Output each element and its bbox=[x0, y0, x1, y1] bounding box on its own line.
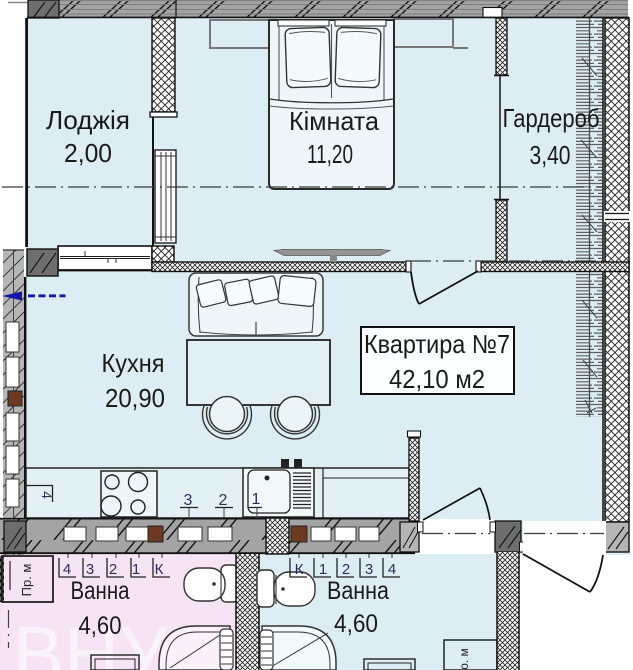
svg-text:3,40: 3,40 bbox=[530, 140, 571, 170]
svg-text:4,60: 4,60 bbox=[334, 610, 378, 638]
svg-text:Квартира №7: Квартира №7 bbox=[364, 329, 510, 359]
svg-text:4: 4 bbox=[39, 491, 55, 499]
svg-text:4: 4 bbox=[63, 561, 71, 578]
svg-text:К: К bbox=[295, 561, 304, 578]
svg-text:3: 3 bbox=[365, 561, 373, 578]
svg-text:2: 2 bbox=[109, 561, 117, 578]
svg-text:2: 2 bbox=[219, 492, 228, 509]
svg-text:20,90: 20,90 bbox=[105, 383, 165, 413]
svg-text:2,00: 2,00 bbox=[64, 138, 112, 168]
svg-text:К: К bbox=[155, 561, 164, 578]
svg-text:4: 4 bbox=[388, 561, 396, 578]
svg-text:3: 3 bbox=[86, 561, 94, 578]
svg-text:Пр. м: Пр. м bbox=[19, 564, 34, 597]
svg-text:Ванна: Ванна bbox=[71, 577, 130, 605]
svg-text:1: 1 bbox=[319, 561, 327, 578]
svg-text:Гардероб: Гардероб bbox=[503, 103, 600, 133]
svg-text:1: 1 bbox=[132, 561, 140, 578]
svg-text:3: 3 bbox=[184, 492, 193, 509]
svg-text:4,60: 4,60 bbox=[79, 612, 122, 640]
svg-text:о. м: о. м bbox=[457, 648, 471, 670]
svg-text:2: 2 bbox=[342, 561, 350, 578]
svg-text:1: 1 bbox=[252, 491, 261, 508]
svg-text:Лоджія: Лоджія bbox=[46, 105, 130, 135]
svg-text:Кухня: Кухня bbox=[102, 348, 165, 378]
svg-text:Ванна: Ванна bbox=[327, 577, 389, 605]
svg-text:Кімната: Кімната bbox=[289, 106, 380, 136]
svg-text:42,10 м2: 42,10 м2 bbox=[389, 364, 485, 394]
svg-text:11,20: 11,20 bbox=[307, 139, 353, 169]
